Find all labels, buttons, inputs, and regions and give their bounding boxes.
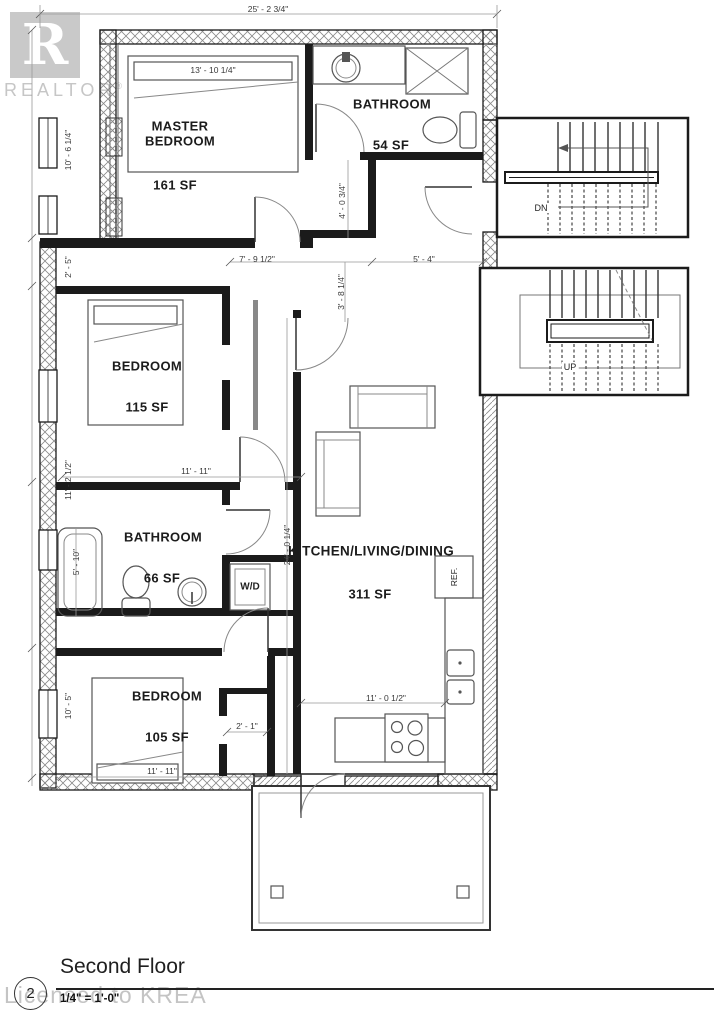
- dim-master-depth: 10' - 6 1/4": [63, 130, 73, 171]
- dim-bath-upper-entry: 4' - 0 3/4": [337, 183, 347, 219]
- dim-kitchen-width: 11' - 0 1/2": [366, 693, 406, 703]
- sofa-small: [316, 432, 360, 516]
- dim-bedroom-lower-width: 11' - 11": [147, 766, 177, 776]
- area-label-master-bedroom: 161 SF: [153, 179, 197, 194]
- floor-plan-page: R REALTOR® Licensed to KREA: [0, 0, 720, 1020]
- dim-hall-width: 7' - 9 1/2": [239, 254, 275, 264]
- toilet-upper-icon: [423, 117, 457, 143]
- dim-closet-width: 2' - 1": [236, 721, 258, 731]
- washer-dryer-label: W/D: [240, 582, 259, 593]
- sofa-large: [350, 386, 435, 428]
- dim-hall-depth: 3' - 8 1/4": [336, 274, 346, 310]
- dim-bedroom-mid-depth: 11' - 2 1/2": [63, 460, 73, 500]
- sheet-scale: 1/4" = 1'-0": [60, 993, 119, 1005]
- refrigerator-label: REF.: [449, 568, 459, 586]
- room-label-bedroom-mid: BEDROOM: [112, 360, 182, 375]
- dim-overall-width: 25' - 2 3/4": [248, 4, 289, 14]
- dim-bedroom-lower-depth: 10' - 5": [63, 693, 73, 719]
- room-label-bathroom-upper: BATHROOM: [353, 98, 431, 113]
- room-label-bathroom-lower: BATHROOM: [124, 531, 202, 546]
- stairs-down-label: DN: [533, 203, 550, 213]
- floorplan-drawing: [0, 0, 720, 1020]
- sheet-number: 2: [26, 985, 34, 1002]
- dim-kitchen-depth: 24' - 0 1/4": [282, 525, 292, 566]
- balcony: [252, 786, 490, 930]
- sheet-title: Second Floor: [60, 955, 185, 979]
- stairs-down: [497, 118, 688, 237]
- title-underline: [56, 988, 714, 990]
- dim-entry-width: 5' - 4": [413, 254, 435, 264]
- stairs-up-label: UP: [562, 362, 579, 372]
- area-label-bedroom-lower: 105 SF: [145, 731, 189, 746]
- dim-hall-upper: 2' - 5": [63, 256, 73, 278]
- area-label-kitchen-living-dining: 311 SF: [349, 588, 392, 603]
- area-label-bedroom-mid: 115 SF: [126, 401, 169, 416]
- living-furniture: [316, 386, 435, 516]
- sheet-number-bubble: 2: [14, 977, 47, 1010]
- vanity-counter: [313, 46, 405, 84]
- area-label-bathroom-upper: 54 SF: [373, 139, 409, 154]
- room-label-master-bedroom: MASTER BEDROOM: [120, 119, 240, 148]
- dim-bedroom-mid-width: 11' - 11": [181, 466, 211, 476]
- stove-icon: [385, 714, 428, 762]
- stairs-up: [480, 268, 688, 395]
- area-label-bathroom-lower: 66 SF: [144, 572, 180, 587]
- right-counter: [445, 598, 483, 774]
- room-label-bedroom-lower: BEDROOM: [132, 690, 202, 705]
- dim-bath-lower-width: 5' - 10": [71, 549, 81, 575]
- room-label-kitchen-living-dining: KITCHEN/LIVING/DINING: [288, 543, 454, 558]
- dim-master-bed-width: 13' - 10 1/4": [190, 65, 235, 75]
